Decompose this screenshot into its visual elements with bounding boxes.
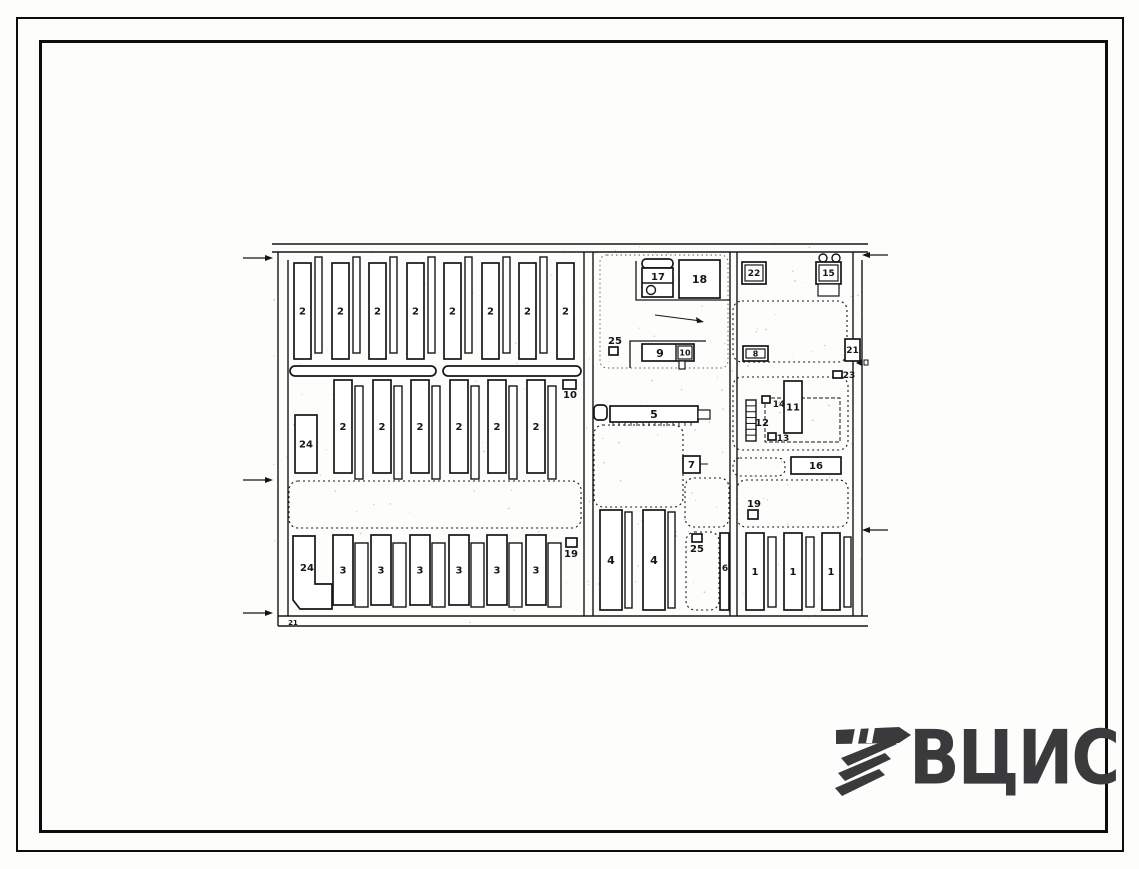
scan-speckle: [356, 511, 357, 512]
yard-below-7: [685, 478, 729, 527]
scan-speckle: [563, 253, 564, 254]
scan-speckle: [776, 354, 777, 355]
scan-speckle: [647, 402, 648, 403]
plan-label: 2: [449, 307, 456, 318]
plan-label: 1: [752, 567, 759, 578]
plan-label: 25: [608, 336, 622, 347]
plan-label: 18: [692, 273, 707, 286]
scan-speckle: [587, 581, 589, 583]
scan-speckle: [686, 550, 688, 552]
annex-bar: [465, 257, 472, 353]
scan-speckle: [364, 485, 365, 486]
scan-speckle: [474, 490, 475, 491]
scan-speckle: [518, 361, 519, 362]
annex-bar: [390, 257, 397, 353]
annex-bar: [471, 386, 479, 479]
bldg-19: [566, 538, 577, 547]
scan-speckle: [742, 580, 743, 581]
plan-label: 2: [417, 422, 424, 433]
bldg-10: [563, 380, 576, 389]
scan-speckle: [794, 280, 796, 282]
scan-speckle: [332, 394, 333, 395]
scan-speckle: [320, 475, 321, 476]
scan-speckle: [582, 302, 583, 303]
circle: [832, 254, 840, 262]
scan-speckle: [812, 351, 813, 352]
scan-speckle: [273, 299, 275, 301]
scan-speckle: [728, 611, 730, 613]
scan-speckle: [747, 365, 749, 367]
scan-speckle: [373, 504, 374, 505]
scan-speckle: [732, 370, 734, 372]
scan-speckle: [513, 609, 515, 611]
scan-speckle: [798, 307, 799, 308]
annex-bar: [509, 386, 517, 479]
scan-speckle: [651, 380, 653, 382]
entry-arrow: [265, 255, 273, 261]
scan-speckle: [757, 328, 758, 329]
scan-speckle: [482, 442, 483, 443]
annex-bar: [548, 386, 556, 479]
vcis-logo-icon: [833, 725, 913, 800]
plan-label: 24: [300, 563, 314, 574]
annex-bar: [315, 257, 322, 353]
scan-speckle: [792, 357, 793, 358]
kiosk: [594, 405, 607, 420]
scan-speckle: [551, 275, 552, 276]
bldg-19b: [748, 510, 758, 519]
scan-speckle: [620, 480, 622, 482]
scan-speckle: [577, 523, 578, 524]
scan-speckle: [829, 476, 830, 477]
scan-speckle: [515, 342, 517, 344]
scan-speckle: [325, 347, 326, 348]
plan-label: 3: [417, 566, 424, 577]
scan-speckle: [809, 247, 811, 249]
bldg-13: [768, 433, 776, 440]
scan-speckle: [314, 253, 315, 254]
plan-label: 24: [299, 440, 313, 451]
vcis-logo-text: ВЦИС: [909, 714, 1118, 802]
scan-speckle: [608, 361, 609, 362]
scan-speckle: [475, 381, 476, 382]
scan-speckle: [469, 622, 470, 623]
annex-bar: [625, 512, 632, 608]
scan-speckle: [286, 456, 287, 457]
scan-speckle: [722, 452, 723, 453]
plan-label: 2: [374, 307, 381, 318]
annex-bar: [355, 543, 368, 607]
vcis-logo: ВЦИС: [833, 722, 1083, 802]
rect: [864, 360, 868, 365]
annex-bar: [393, 543, 406, 607]
shelter-strip: [290, 366, 436, 376]
plan-label: 2: [524, 307, 531, 318]
scan-speckle: [566, 582, 567, 583]
scan-speckle: [586, 427, 587, 428]
plan-label: 2: [412, 307, 419, 318]
scan-speckle: [688, 531, 689, 532]
plan-label: 12: [755, 418, 769, 429]
scan-speckle: [851, 443, 853, 445]
scan-speckle: [653, 614, 654, 615]
scan-speckle: [756, 331, 758, 333]
rect: [679, 361, 685, 369]
plan-label: 25: [690, 544, 704, 555]
plan-label: 3: [340, 566, 347, 577]
scan-speckle: [851, 296, 852, 297]
polygon: [696, 317, 704, 323]
shelter-strip: [443, 366, 581, 376]
scan-speckle: [657, 434, 658, 435]
entry-arrow: [265, 610, 273, 616]
scan-speckle: [595, 253, 596, 254]
scan-speckle: [787, 524, 788, 525]
plan-label: 14: [773, 400, 786, 410]
scan-speckle: [716, 507, 717, 508]
scan-speckle: [273, 355, 274, 356]
scan-speckle: [841, 354, 842, 355]
scan-speckle: [722, 408, 724, 410]
scan-speckle: [752, 476, 753, 477]
scan-speckle: [655, 253, 656, 254]
scan-speckle: [335, 490, 337, 492]
entry-arrow: [265, 477, 273, 483]
scan-speckle: [721, 389, 723, 391]
scan-speckle: [409, 512, 410, 513]
scan-speckle: [618, 442, 620, 444]
plan-label: 21: [288, 619, 298, 627]
plan-label: 2: [562, 307, 569, 318]
scan-speckle: [715, 432, 716, 433]
scan-speckle: [273, 464, 274, 465]
bldg-14: [762, 396, 770, 403]
scan-speckle: [511, 490, 512, 491]
scan-speckle: [291, 504, 292, 505]
plan-label: 2: [494, 422, 501, 433]
site-plan: 2222222224222222102433333319171825910221…: [240, 225, 900, 640]
yard-mid-left: [289, 481, 581, 528]
annex-bar: [806, 537, 814, 607]
annex-bar: [471, 543, 484, 607]
plan-label: 19: [564, 549, 578, 560]
scan-speckle: [812, 420, 814, 422]
leader: [655, 315, 701, 321]
plan-label: 7: [688, 460, 695, 471]
scan-speckle: [695, 500, 696, 501]
plan-label: 2: [337, 307, 344, 318]
plan-label: 3: [456, 566, 463, 577]
scan-speckle: [831, 309, 832, 310]
scan-speckle: [792, 271, 793, 272]
plan-label: 10: [563, 390, 577, 401]
scan-speckle: [815, 614, 816, 615]
annex-bar: [353, 257, 360, 353]
scan-speckle: [300, 363, 301, 364]
annex-bar: [509, 543, 522, 607]
scan-speckle: [694, 438, 695, 439]
scanned-drawing-sheet: { "logo": { "text": "ВЦИС", "color": "#3…: [0, 0, 1139, 869]
scan-speckle: [681, 389, 682, 390]
plan-label: 16: [809, 461, 823, 472]
scan-speckle: [857, 313, 858, 314]
plan-label: 22: [748, 269, 761, 279]
scan-speckle: [727, 484, 728, 485]
scan-speckle: [676, 535, 678, 537]
scan-speckle: [514, 380, 515, 381]
scan-speckle: [806, 282, 807, 283]
scan-speckle: [639, 328, 640, 329]
scan-speckle: [820, 598, 821, 599]
scan-speckle: [694, 429, 696, 431]
scan-speckle: [679, 609, 680, 610]
plan-label: 2: [379, 422, 386, 433]
annex-bar: [768, 537, 776, 607]
plan-label: 9: [656, 347, 664, 360]
scan-speckle: [789, 460, 790, 461]
scan-speckle: [635, 581, 636, 582]
scan-speckle: [846, 503, 847, 504]
scan-speckle: [301, 394, 302, 395]
plan-label: 2: [299, 307, 306, 318]
bldg-25: [609, 347, 618, 355]
plan-label: 2: [533, 422, 540, 433]
scan-speckle: [778, 564, 779, 565]
scan-speckle: [639, 246, 640, 247]
plan-label: 21: [846, 346, 859, 356]
scan-speckle: [693, 582, 694, 583]
scan-speckle: [637, 565, 638, 566]
scan-speckle: [326, 449, 327, 450]
scan-speckle: [779, 412, 781, 414]
scan-speckle: [589, 501, 590, 502]
plan-label: 2: [487, 307, 494, 318]
plan-label: 15: [822, 269, 835, 279]
scan-speckle: [781, 461, 782, 462]
circle: [819, 254, 827, 262]
annex-bar: [355, 386, 363, 479]
scan-speckle: [824, 345, 825, 346]
scan-speckle: [602, 438, 603, 439]
scan-speckle: [603, 462, 605, 464]
plan-label: 6: [722, 564, 728, 574]
plan-label: 8: [753, 349, 759, 358]
plan-label: 19: [747, 499, 761, 510]
annex-bar: [668, 512, 675, 608]
scan-speckle: [274, 540, 275, 541]
scan-speckle: [743, 593, 744, 594]
entry-arrow: [862, 527, 870, 533]
scan-speckle: [524, 389, 525, 390]
scan-speckle: [389, 503, 391, 505]
annex-bar: [548, 543, 561, 607]
annex-bar: [394, 386, 402, 479]
scan-speckle: [691, 492, 693, 494]
circle: [647, 286, 656, 295]
scan-speckle: [701, 306, 702, 307]
annex-bar: [540, 257, 547, 353]
scan-speckle: [674, 279, 675, 280]
scan-speckle: [775, 314, 776, 315]
plan-label: 17: [651, 272, 665, 283]
annex-bar: [428, 257, 435, 353]
scan-speckle: [724, 343, 725, 344]
plan-label: 2: [340, 422, 347, 433]
rect: [818, 284, 839, 296]
scan-speckle: [588, 584, 589, 585]
scan-speckle: [704, 591, 706, 593]
plan-label: 4: [607, 554, 615, 567]
scan-speckle: [787, 484, 788, 485]
scan-speckle: [765, 329, 767, 331]
scan-speckle: [483, 450, 485, 452]
plan-label: 3: [378, 566, 385, 577]
bldg-17-roof: [642, 259, 673, 268]
scan-speckle: [844, 269, 845, 270]
scan-speckle: [830, 335, 831, 336]
rect: [698, 410, 710, 419]
bldg-25b: [692, 534, 702, 542]
scan-speckle: [508, 508, 510, 510]
annex-bar: [503, 257, 510, 353]
annex-bar: [432, 543, 445, 607]
scan-speckle: [305, 486, 306, 487]
plan-label: 11: [786, 403, 800, 414]
scan-speckle: [538, 531, 540, 533]
scan-speckle: [857, 295, 859, 297]
yard-center: [594, 425, 683, 507]
plan-label: 10: [679, 348, 691, 357]
plan-label: 5: [650, 408, 658, 421]
scan-speckle: [641, 520, 642, 521]
scan-speckle: [828, 405, 830, 407]
scan-speckle: [684, 519, 685, 520]
plan-label: 3: [494, 566, 501, 577]
plan-label: 4: [650, 554, 658, 567]
bldg-23: [833, 371, 842, 378]
scan-speckle: [346, 511, 347, 512]
scan-speckle: [589, 358, 590, 359]
scan-speckle: [614, 250, 616, 252]
scan-speckle: [360, 533, 362, 535]
scan-speckle: [686, 480, 687, 481]
scan-speckle: [516, 363, 517, 364]
scan-speckle: [626, 291, 627, 292]
scan-speckle: [709, 421, 711, 423]
plan-label: 1: [790, 567, 797, 578]
scan-speckle: [327, 350, 328, 351]
plan-label: 13: [777, 434, 790, 444]
yard-small-right: [733, 458, 785, 476]
plan-label: 23: [843, 371, 856, 381]
scan-speckle: [637, 523, 638, 524]
annex-bar: [844, 537, 851, 607]
scan-speckle: [601, 622, 602, 623]
scan-speckle: [767, 499, 768, 500]
scan-speckle: [275, 261, 276, 262]
scan-speckle: [731, 431, 732, 432]
plan-label: 1: [828, 567, 835, 578]
entry-arrow: [862, 252, 870, 258]
scan-speckle: [654, 335, 656, 337]
plan-label: 3: [533, 566, 540, 577]
scan-speckle: [717, 377, 718, 378]
scan-speckle: [763, 498, 764, 499]
annex-bar: [432, 386, 440, 479]
plan-label: 2: [456, 422, 463, 433]
